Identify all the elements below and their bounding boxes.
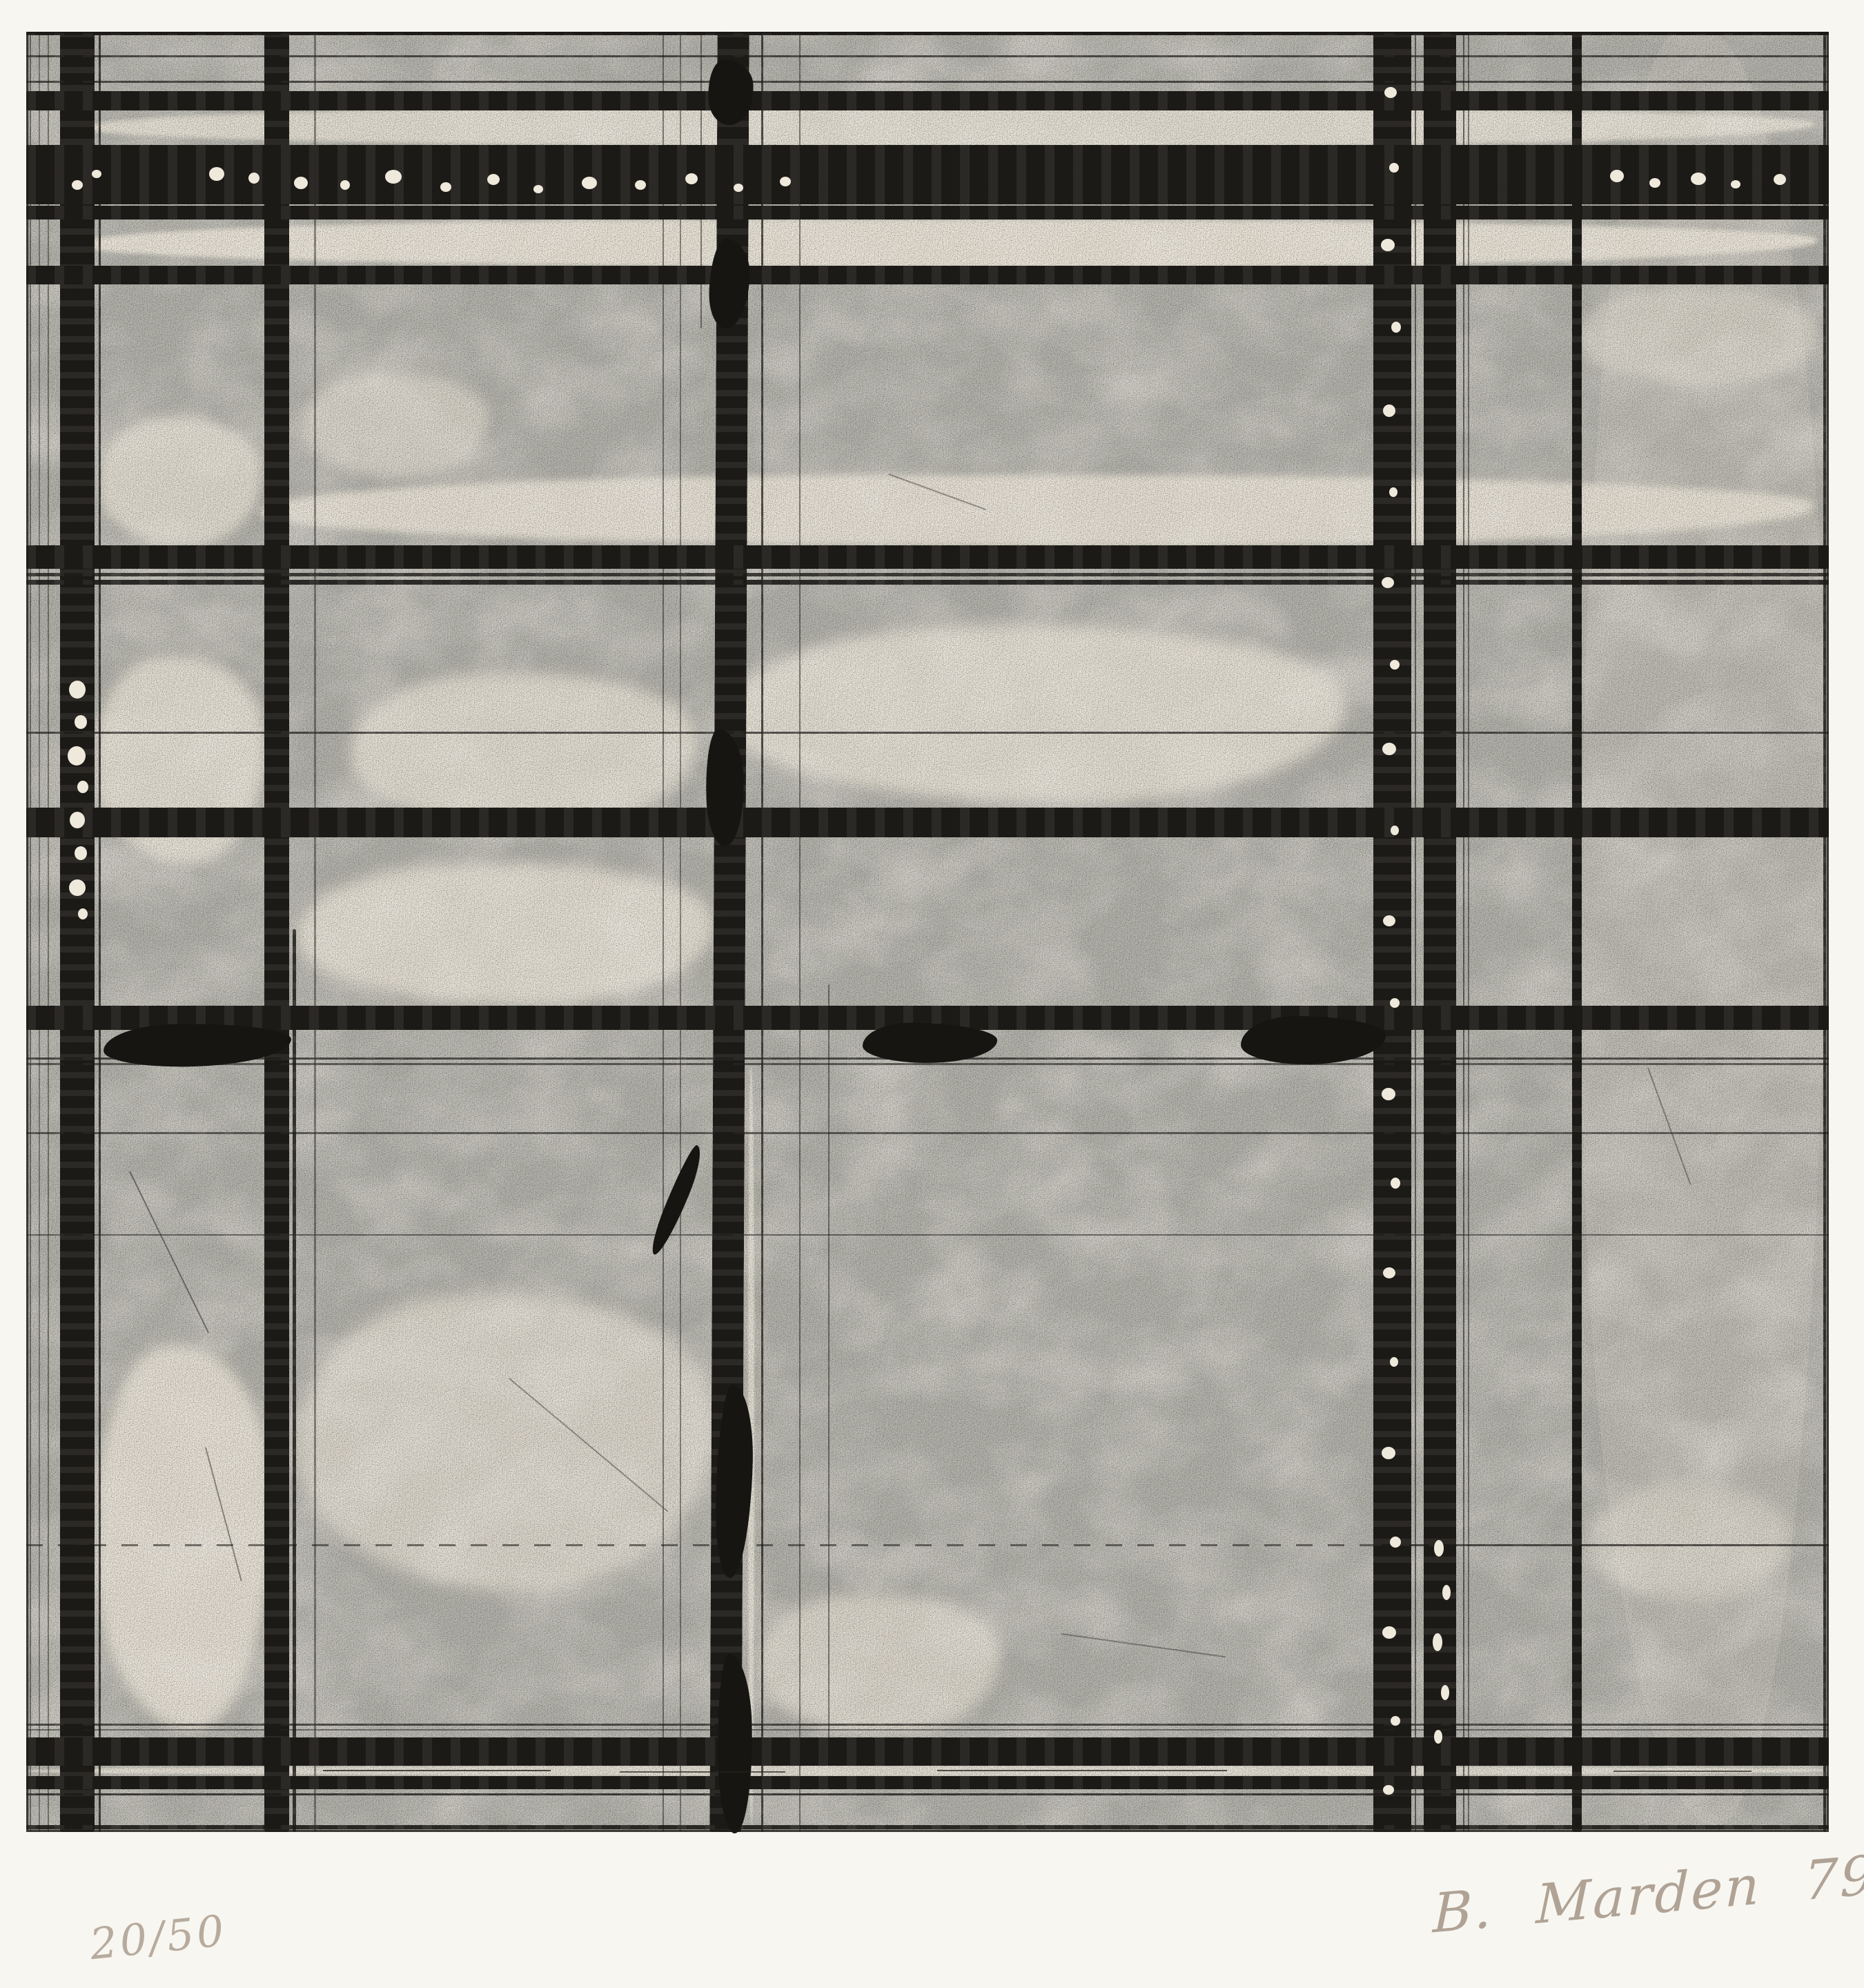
edition-number: 20/50 bbox=[88, 1905, 229, 1969]
ink-void-dot bbox=[209, 167, 224, 181]
ink-void-dot bbox=[1442, 1585, 1451, 1600]
ink-void-dot bbox=[1390, 1357, 1398, 1367]
ink-void-dot bbox=[1383, 915, 1395, 926]
ink-void-dot bbox=[75, 715, 87, 729]
ink-void-dot bbox=[1610, 170, 1624, 182]
ink-void-dot bbox=[70, 812, 85, 828]
ink-void-dot bbox=[1434, 1540, 1444, 1557]
ink-void-dot bbox=[69, 681, 86, 699]
ink-void-dot bbox=[294, 177, 308, 189]
ink-void-dot bbox=[1389, 487, 1397, 497]
ink-void-dot bbox=[582, 177, 597, 189]
ink-void-dot bbox=[1391, 1178, 1400, 1189]
ink-void-dot bbox=[1390, 998, 1400, 1008]
ink-void-dot bbox=[1383, 1785, 1394, 1795]
ink-void-dot bbox=[248, 173, 259, 184]
ink-void-dot bbox=[440, 182, 451, 192]
ink-void-dot bbox=[1384, 87, 1397, 98]
ink-void-dot bbox=[1391, 322, 1401, 333]
ink-void-dot bbox=[1383, 405, 1395, 417]
ink-void-dot bbox=[685, 173, 698, 184]
ink-void-dot bbox=[1391, 826, 1399, 835]
ink-void-dot bbox=[92, 170, 101, 178]
ink-void-dot bbox=[780, 177, 791, 186]
ink-void-dot bbox=[1390, 660, 1400, 670]
ink-void-dot bbox=[1390, 1537, 1401, 1548]
artwork-plate bbox=[26, 32, 1829, 1832]
ink-void-dot bbox=[1382, 577, 1394, 588]
ink-void-dot bbox=[1391, 1716, 1400, 1726]
ink-void-dot bbox=[635, 180, 646, 190]
ink-void-dot bbox=[1382, 1088, 1395, 1100]
ink-void-dot bbox=[1433, 1633, 1442, 1651]
ink-void-dot bbox=[1691, 173, 1706, 185]
ink-void-dot bbox=[75, 846, 87, 860]
ink-void-dot bbox=[72, 180, 83, 190]
ink-void-dot bbox=[1381, 239, 1395, 251]
ink-void-dot bbox=[69, 879, 86, 896]
artist-signature: B. Marden 79 bbox=[1432, 1844, 1864, 1946]
ink-void-dot bbox=[1382, 743, 1396, 755]
ink-void-dot bbox=[487, 174, 500, 185]
ink-void-dot bbox=[734, 184, 743, 192]
ink-void-dot bbox=[1382, 1626, 1396, 1639]
ink-void-dot bbox=[533, 185, 543, 193]
ink-void-dot bbox=[68, 746, 86, 766]
ink-void-dot bbox=[1389, 163, 1399, 173]
ink-void-dot bbox=[1441, 1685, 1449, 1700]
ink-void-dot bbox=[1382, 1447, 1395, 1459]
ink-void-dot bbox=[340, 180, 350, 190]
ink-void-dot bbox=[1383, 1267, 1395, 1278]
ink-void-dot bbox=[77, 781, 88, 793]
ink-void-layer bbox=[26, 32, 1829, 1832]
ink-void-dot bbox=[1731, 180, 1740, 188]
ink-void-dot bbox=[78, 908, 88, 919]
ink-void-dot bbox=[385, 170, 402, 184]
ink-void-dot bbox=[1774, 174, 1786, 185]
ink-void-dot bbox=[1434, 1730, 1442, 1744]
ink-void-dot bbox=[1649, 178, 1660, 188]
